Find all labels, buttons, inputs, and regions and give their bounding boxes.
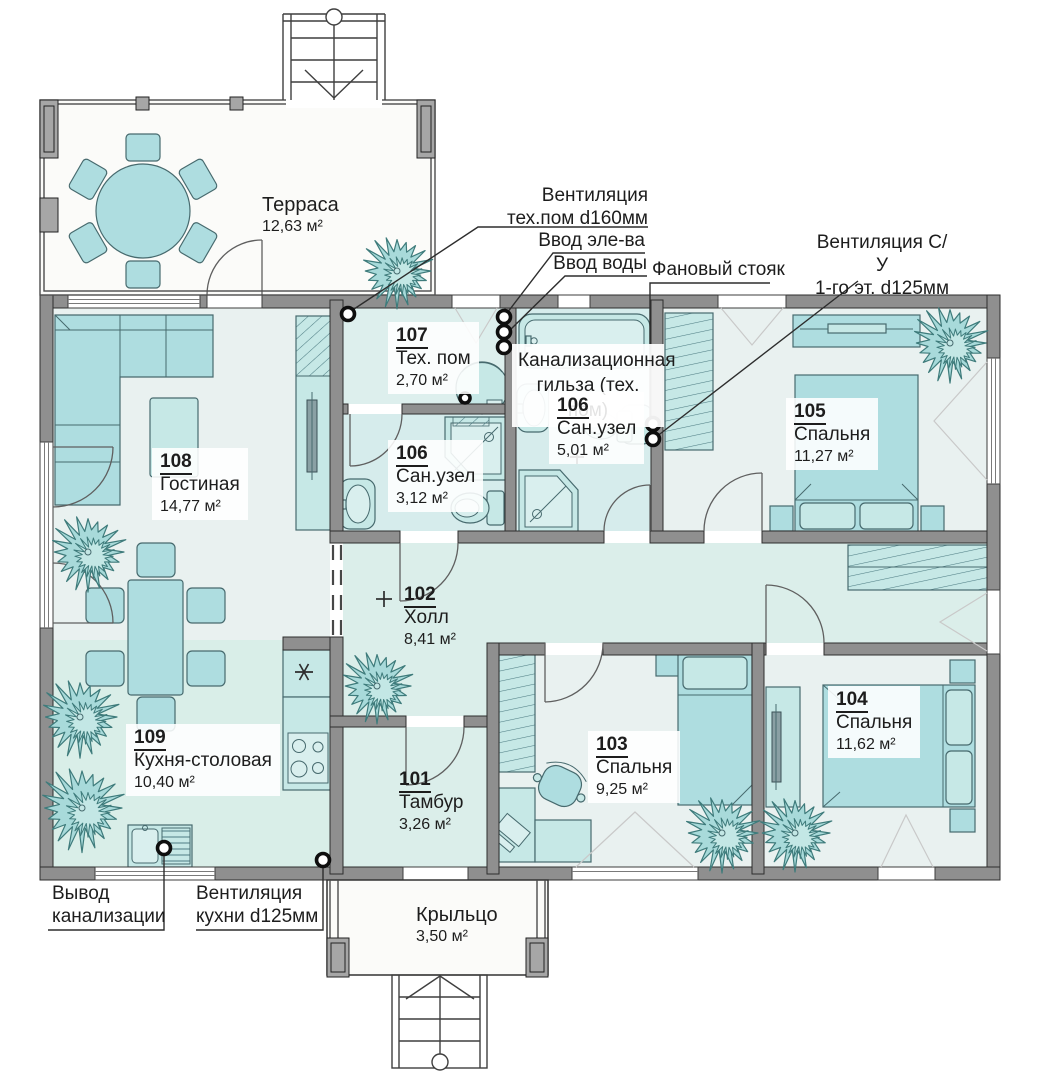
annotation-water-inlet: Ввод воды	[553, 252, 647, 275]
room-area: 2,70 м²	[396, 371, 471, 390]
vent-su-marker	[647, 433, 660, 446]
terrace-stairs	[283, 9, 385, 100]
label-room-109: 109 Кухня-столовая 10,40 м²	[126, 724, 280, 796]
room-name: Спальня	[596, 757, 672, 780]
room-area: 11,62 м²	[836, 735, 912, 754]
room-name: Крыльцо	[416, 903, 498, 927]
room-number: 102	[404, 584, 436, 608]
room-area: 5,01 м²	[557, 441, 636, 460]
label-room-106-small: 106 Сан.узел 3,12 м²	[388, 440, 483, 512]
label-room-108: 108 Гостиная 14,77 м²	[152, 448, 248, 520]
boiler-marker	[460, 393, 470, 403]
annotation-vent-su: Вентиляция С/У 1-го эт. d125мм	[812, 231, 952, 301]
room-name: Сан.узел	[557, 418, 636, 441]
vent-kitchen-marker	[317, 854, 330, 867]
label-room-103: 103 Спальня 9,25 м²	[588, 731, 680, 803]
sewer-outlet-marker	[158, 842, 171, 855]
nightstand	[770, 506, 793, 531]
room-number: 104	[836, 689, 868, 713]
label-porch: Крыльцо 3,50 м²	[408, 900, 506, 950]
room-area: 3,12 м²	[396, 489, 475, 508]
hall-wardrobe	[848, 545, 990, 590]
annotation-power-inlet: Ввод эле-ва	[538, 229, 645, 252]
label-room-102: 102 Холл 8,41 м²	[396, 581, 464, 653]
room-name: Тамбур	[399, 792, 464, 815]
nightstand	[921, 506, 944, 531]
label-room-105: 105 Спальня 11,27 м²	[786, 398, 878, 470]
room-name: Гостиная	[160, 474, 240, 497]
room-number: 103	[596, 734, 628, 758]
room-area: 9,25 м²	[596, 780, 672, 799]
annotation-vent-kitchen: Вентиляция кухни d125мм	[196, 882, 318, 928]
nightstand	[950, 809, 975, 832]
annotation-vent-tech: Вентиляция тех.пом d160мм	[507, 184, 648, 230]
room-area: 3,26 м²	[399, 815, 464, 834]
room-name: Тех. пом	[396, 348, 471, 371]
room-number: 106	[396, 443, 428, 467]
living-hall-opening	[333, 545, 341, 637]
vent-tech-marker	[342, 308, 355, 321]
annotation-sewer-outlet: Вывод канализации	[52, 882, 165, 928]
nightstand	[950, 660, 975, 683]
room-name: Спальня	[836, 712, 912, 735]
power-inlet-marker	[498, 311, 511, 324]
round-table	[96, 164, 190, 258]
room-area: 14,77 м²	[160, 497, 240, 516]
room-number: 109	[134, 727, 166, 751]
label-room-107: 107 Тех. пом 2,70 м²	[388, 322, 479, 394]
room-name: Спальня	[794, 424, 870, 447]
room-area: 10,40 м²	[134, 773, 272, 792]
annotation-sewer-stack: Фановый стояк	[652, 258, 785, 281]
room-number: 101	[399, 769, 431, 793]
room-name: Холл	[404, 607, 456, 630]
label-terrace: Терраса 12,63 м²	[254, 190, 347, 240]
room-number: 106	[557, 395, 589, 419]
room-area: 11,27 м²	[794, 447, 870, 466]
wardrobe	[499, 652, 535, 772]
label-room-104: 104 Спальня 11,62 м²	[828, 686, 920, 758]
room-area: 12,63 м²	[262, 217, 339, 236]
room-number: 107	[396, 325, 428, 349]
nightstand	[656, 652, 679, 676]
room-name: Терраса	[262, 193, 339, 217]
room-name: Кухня-столовая	[134, 750, 272, 773]
floor-plan-canvas: Терраса 12,63 м² 107 Тех. пом 2,70 м² Ка…	[0, 0, 1037, 1080]
label-room-106-big: 106 Сан.узел 5,01 м²	[549, 392, 644, 464]
room-area: 8,41 м²	[404, 630, 456, 649]
room-area: 3,50 м²	[416, 927, 498, 946]
water-inlet-marker	[498, 326, 511, 339]
inlet-marker	[498, 341, 511, 354]
tv-console	[766, 687, 800, 807]
room-number: 108	[160, 451, 192, 475]
room-name: Сан.узел	[396, 466, 475, 489]
porch-stairs	[392, 975, 487, 1070]
wardrobe	[665, 313, 713, 450]
label-room-101: 101 Тамбур 3,26 м²	[391, 766, 472, 838]
room-number: 105	[794, 401, 826, 425]
